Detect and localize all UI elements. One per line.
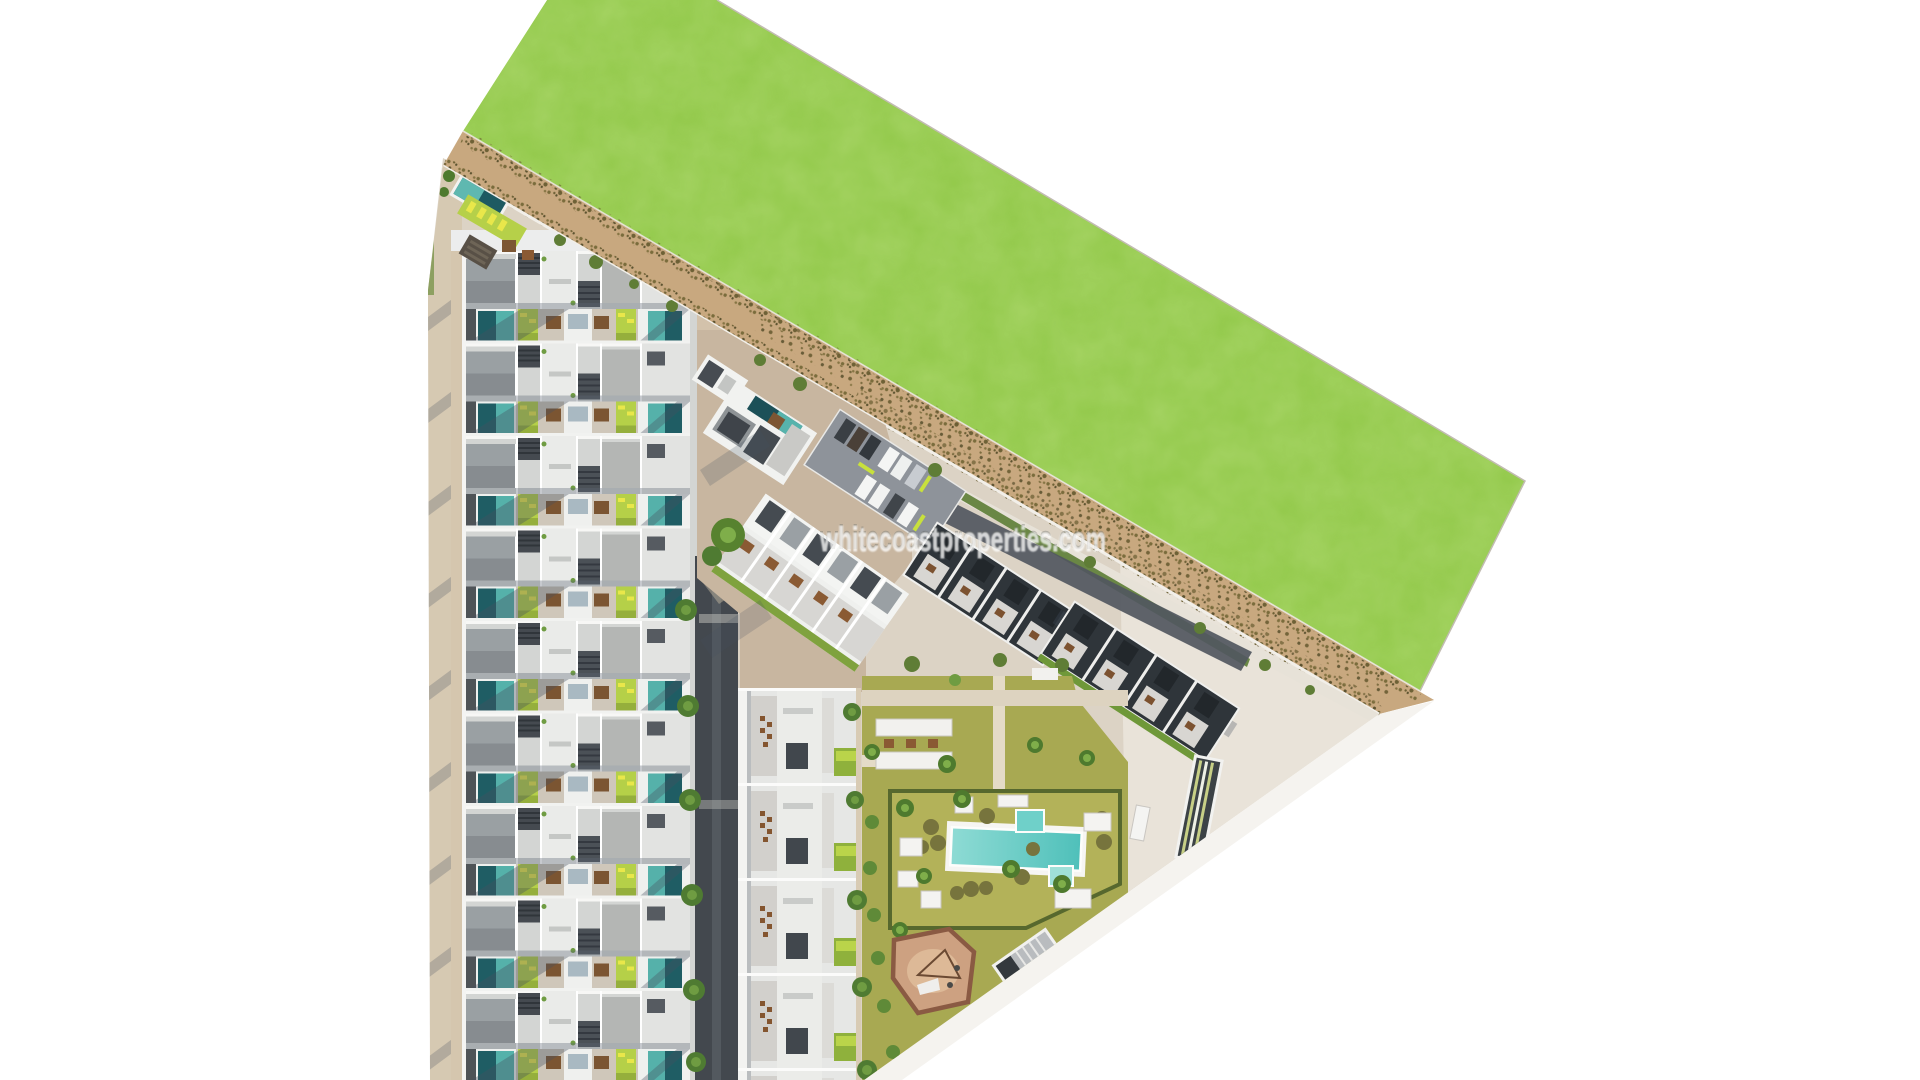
svg-text:whitecoastproperties.com: whitecoastproperties.com bbox=[819, 521, 1106, 559]
